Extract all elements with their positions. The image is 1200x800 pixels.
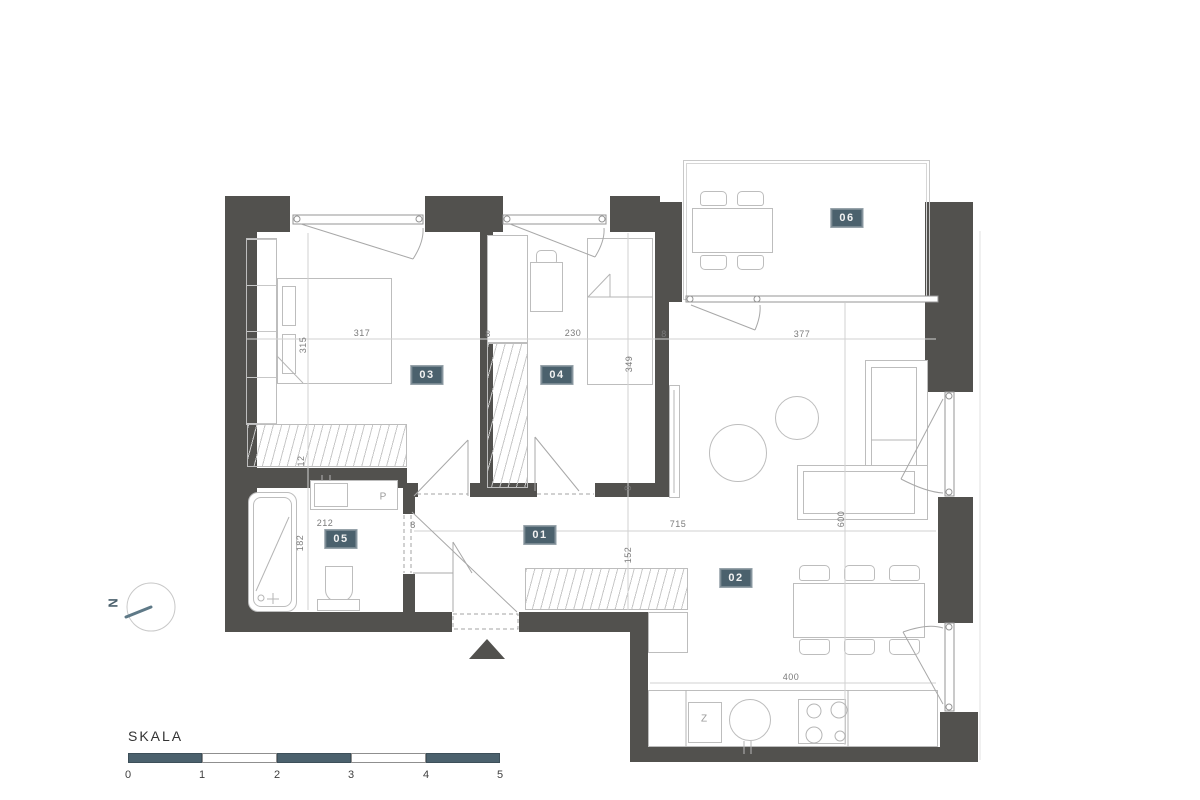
scale-tick: 1 bbox=[199, 769, 205, 781]
wall-segment bbox=[940, 712, 978, 752]
closet bbox=[487, 235, 528, 343]
dining-table bbox=[793, 583, 925, 638]
wall-segment bbox=[425, 196, 503, 232]
dim-label: 212 bbox=[317, 518, 334, 528]
wall-segment bbox=[630, 747, 978, 762]
sofa-chaise-seat bbox=[803, 471, 915, 514]
balcony-chair bbox=[737, 191, 764, 206]
scale-tick: 5 bbox=[497, 769, 503, 781]
entrance-arrow-icon bbox=[469, 639, 505, 659]
toilet-tank bbox=[317, 599, 360, 611]
wall-segment bbox=[925, 202, 973, 392]
dim-label: 230 bbox=[565, 328, 582, 338]
toilet-bowl bbox=[325, 566, 353, 602]
scale-title: SKALA bbox=[128, 728, 183, 744]
tv-stand bbox=[669, 385, 680, 498]
room-badge-06: 06 bbox=[830, 208, 863, 228]
wall-segment bbox=[630, 630, 648, 762]
wardrobe bbox=[247, 424, 407, 467]
stove bbox=[798, 699, 846, 744]
compass-circle bbox=[127, 583, 175, 631]
room-badge-03: 03 bbox=[410, 365, 443, 385]
dim-label: 152 bbox=[623, 547, 633, 564]
compass bbox=[126, 583, 175, 631]
room-badge-01: 01 bbox=[523, 525, 556, 545]
scale-segment bbox=[351, 753, 425, 763]
wall-segment bbox=[938, 497, 973, 623]
hall-wardrobe bbox=[525, 568, 688, 610]
room-badge-05: 05 bbox=[324, 529, 357, 549]
dim-label: 715 bbox=[670, 519, 687, 529]
balcony-chair bbox=[700, 255, 727, 270]
dim-label: 8 bbox=[485, 329, 491, 339]
dim-label: 349 bbox=[624, 356, 634, 373]
single-bed bbox=[587, 238, 653, 385]
room-badge-04: 04 bbox=[540, 365, 573, 385]
wall-segment bbox=[655, 232, 669, 497]
scale-segment bbox=[202, 753, 276, 763]
dim-label: 8 bbox=[623, 485, 633, 491]
compass-needle bbox=[126, 607, 151, 617]
dining-chair bbox=[799, 565, 830, 581]
room-badge-02: 02 bbox=[719, 568, 752, 588]
dim-label: 315 bbox=[298, 337, 308, 354]
compass-north-label: N bbox=[106, 598, 121, 607]
washing-machine-label: P bbox=[380, 492, 387, 503]
dining-chair bbox=[889, 565, 920, 581]
scale-tick: 3 bbox=[348, 769, 354, 781]
shower-basin bbox=[253, 497, 292, 607]
scale-segment bbox=[277, 753, 351, 763]
dining-chair bbox=[844, 639, 875, 655]
scale-tick: 0 bbox=[125, 769, 131, 781]
pillow bbox=[282, 286, 296, 326]
dining-chair bbox=[889, 639, 920, 655]
scale-tick: 4 bbox=[423, 769, 429, 781]
plan-linework bbox=[0, 0, 1200, 800]
scale-tick: 2 bbox=[274, 769, 280, 781]
hall-cabinet bbox=[648, 612, 688, 653]
dim-label: 8 bbox=[410, 520, 416, 530]
dim-label: 12 bbox=[296, 455, 306, 466]
coffee-table-large bbox=[709, 424, 767, 482]
dim-label: 317 bbox=[354, 328, 371, 338]
scale-bar bbox=[128, 753, 500, 763]
coffee-table-small bbox=[775, 396, 819, 440]
pillow bbox=[282, 334, 296, 374]
kitchen-appliance-label: Z bbox=[701, 714, 707, 725]
washbasin bbox=[314, 483, 348, 507]
scale-segment bbox=[426, 753, 500, 763]
dining-chair bbox=[799, 639, 830, 655]
dim-label: 182 bbox=[295, 535, 305, 552]
balcony-table bbox=[692, 208, 773, 253]
wall-segment bbox=[519, 612, 648, 632]
kitchen-sink bbox=[729, 699, 771, 741]
balcony-chair bbox=[700, 191, 727, 206]
floor-plan: 01 02 03 04 05 06 317 315 8 230 8 377 34… bbox=[0, 0, 1200, 800]
dim-label: 600 bbox=[836, 511, 846, 528]
scale-segment bbox=[128, 753, 202, 763]
dim-label: 377 bbox=[794, 329, 811, 339]
desk bbox=[530, 262, 563, 312]
wall-segment bbox=[225, 196, 290, 232]
dim-label: 400 bbox=[783, 672, 800, 682]
closet-shelves bbox=[487, 343, 528, 488]
dim-label: 8 bbox=[661, 329, 667, 339]
dining-chair bbox=[844, 565, 875, 581]
balcony-chair bbox=[737, 255, 764, 270]
bedside-wardrobe bbox=[246, 238, 277, 425]
wall-segment bbox=[225, 612, 452, 632]
wall-segment bbox=[610, 196, 660, 232]
wall-segment bbox=[403, 488, 415, 514]
